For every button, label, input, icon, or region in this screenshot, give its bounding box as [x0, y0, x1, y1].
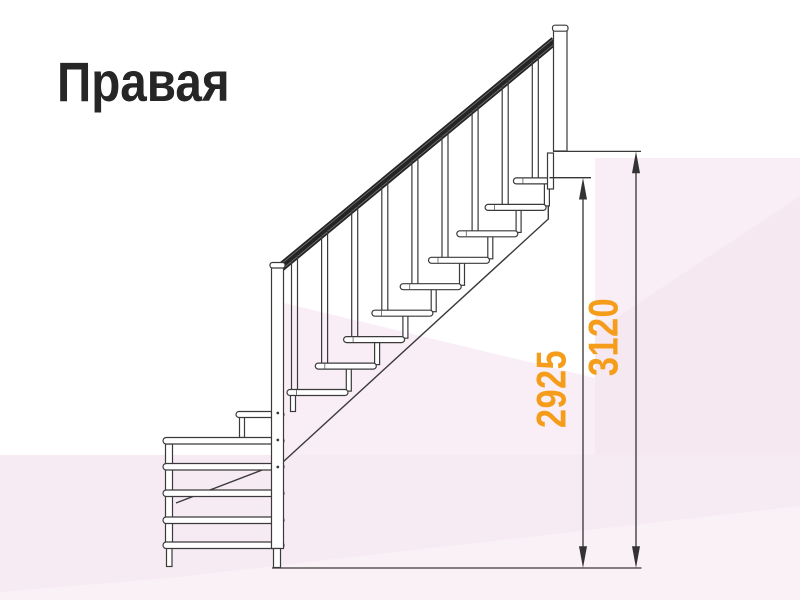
staircase-diagram-page: 2925 3120 Правая [0, 0, 800, 600]
winder-tread [163, 542, 284, 549]
riser [516, 209, 521, 232]
riser [346, 368, 351, 391]
background-shapes [0, 158, 800, 600]
riser [488, 236, 493, 259]
baluster-pair [502, 80, 508, 204]
baluster-pair [352, 205, 358, 337]
winder-stem [240, 417, 245, 438]
dimension-label-3120: 3120 [580, 298, 627, 376]
baluster-pair [412, 155, 418, 284]
baluster-pair [442, 130, 448, 257]
riser [403, 315, 408, 338]
screw-dot [276, 466, 279, 469]
tread [513, 178, 549, 184]
riser [460, 262, 465, 285]
baluster-pair [532, 55, 538, 178]
top-post-cap [553, 25, 569, 31]
page-title: Правая [57, 54, 230, 110]
top-post [554, 27, 568, 151]
riser [291, 394, 296, 412]
winder-tread [163, 438, 284, 445]
arrow-up-icon [579, 178, 587, 200]
winder-tread [163, 517, 284, 524]
riser [431, 289, 436, 312]
winder-tread [163, 490, 284, 497]
baluster-pair [472, 105, 478, 231]
fascia-board [548, 153, 554, 189]
dimension-label-2925: 2925 [528, 350, 575, 428]
winder-tread [163, 464, 284, 471]
baluster-pair [382, 180, 388, 310]
riser [375, 342, 380, 365]
left-support-foot [167, 548, 173, 567]
corner-post-cap [270, 263, 285, 269]
screw-dot [276, 439, 279, 442]
corner-post-foot [274, 549, 281, 568]
screw-dot [276, 412, 279, 415]
corner-post [270, 263, 285, 568]
